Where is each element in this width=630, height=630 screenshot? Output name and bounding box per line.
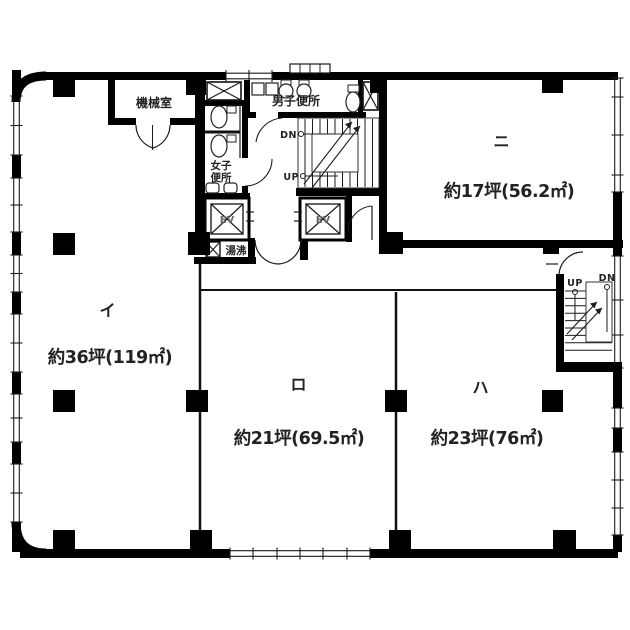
stairs-right-up-label: UP: [567, 278, 583, 289]
hot-water-label: 湯沸: [226, 244, 247, 257]
corner-top-left: [16, 76, 46, 102]
stairs-center: [298, 118, 379, 188]
unit-i: イ 約36坪(119㎡): [48, 301, 172, 368]
unit-ni: ニ 約17坪(56.2㎡): [444, 132, 575, 202]
toilet-tank: [348, 85, 359, 92]
unit-i-name: イ: [99, 301, 116, 320]
stairs-right: [546, 252, 622, 372]
arrowhead: [353, 126, 360, 133]
womens-toilet-door: [245, 159, 272, 186]
stairs-right-door: [559, 252, 583, 276]
floor-plan-page: 機械室 男子便所 女子 便所 湯沸 EV EV DN UP UP DN イ 約3…: [0, 0, 630, 630]
stairs-center-dn-label: DN: [280, 130, 297, 141]
louver-vent: [290, 64, 330, 73]
unit-ro-name: ロ: [290, 375, 307, 394]
partitions: [200, 264, 556, 549]
elevator-left-label: EV: [220, 215, 235, 226]
unit-ha-area: 約23坪(76㎡): [431, 428, 544, 449]
unit-ni-name: ニ: [493, 132, 510, 151]
floor-plan: 機械室 男子便所 女子 便所 湯沸 EV EV DN UP UP DN イ 約3…: [0, 0, 630, 630]
mens-toilet-door: [256, 118, 282, 142]
lobby-double-door: [255, 240, 301, 264]
unit-ni-area: 約17坪(56.2㎡): [444, 181, 575, 202]
elevator-right-label: EV: [316, 215, 331, 226]
unit-ha-name: ハ: [472, 378, 489, 397]
core-walls: [194, 80, 623, 264]
arrowhead: [345, 122, 352, 129]
duct-shaft-left: [207, 82, 241, 100]
womens-toilet-label-2: 便所: [211, 171, 232, 184]
unit-ha: ハ 約23坪(76㎡): [431, 378, 544, 449]
sink: [224, 183, 237, 193]
corner-bottom-left: [16, 522, 46, 553]
sink: [206, 183, 219, 193]
machine-room-label: 機械室: [136, 95, 172, 110]
stairs-right-dn-label: DN: [599, 273, 616, 284]
toilet: [346, 92, 360, 112]
mens-toilet-label: 男子便所: [272, 93, 320, 108]
stairs-center-up-label: UP: [283, 172, 299, 183]
unit-ro: ロ 約21坪(69.5㎡): [234, 375, 365, 449]
unit-i-area: 約36坪(119㎡): [48, 347, 172, 368]
womens-toilet-label-1: 女子: [211, 159, 232, 172]
unit-ro-area: 約21坪(69.5㎡): [234, 428, 365, 449]
